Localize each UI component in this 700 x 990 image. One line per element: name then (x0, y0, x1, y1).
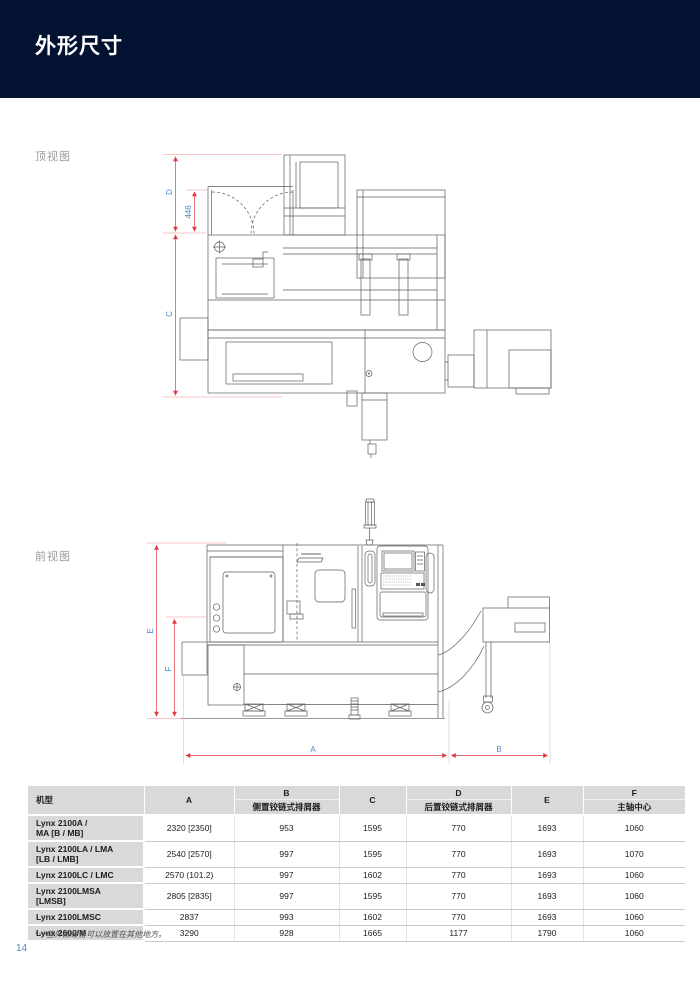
cell-f: 1060 (583, 909, 685, 925)
page-title: 外形尺寸 (35, 30, 123, 60)
cell-b: 993 (234, 909, 339, 925)
cell-d: 770 (406, 883, 511, 909)
col-header-b-letter: B (235, 786, 339, 800)
cell-model: Lynx 2100LC / LMC (28, 867, 144, 883)
col-header-d-sub: 后置铰链式排屑器 (407, 800, 511, 814)
cell-b: 997 (234, 867, 339, 883)
leveling-foot (243, 704, 265, 716)
cell-c: 1595 (339, 815, 406, 841)
cell-d: 1177 (406, 925, 511, 941)
front-view-label: 前视图 (35, 548, 71, 564)
cell-e: 1790 (511, 925, 583, 941)
col-header-f-sub: 主轴中心 (584, 800, 686, 814)
col-header-b: B 侧置铰链式排屑器 (234, 786, 339, 815)
top-view-dimension-lines (163, 155, 282, 398)
cell-e: 1693 (511, 909, 583, 925)
cell-a: 2540 [2570] (144, 841, 234, 867)
cell-c: 1602 (339, 867, 406, 883)
cell-c: 1602 (339, 909, 406, 925)
cell-f: 1060 (583, 815, 685, 841)
cell-b: 997 (234, 883, 339, 909)
front-dim-label-e: E (146, 628, 155, 633)
cell-c: 1595 (339, 883, 406, 909)
top-dim-label-c: C (165, 311, 174, 317)
cell-a: 2805 [2835] (144, 883, 234, 909)
cell-d: 770 (406, 909, 511, 925)
front-dim-label-a: A (310, 745, 316, 754)
leveling-foot (285, 704, 307, 716)
cell-e: 1693 (511, 815, 583, 841)
brand-logo-marks (297, 554, 323, 562)
cell-f: 1060 (583, 867, 685, 883)
col-header-d: D 后置铰链式排屑器 (406, 786, 511, 815)
cell-a: 2837 (144, 909, 234, 925)
chip-conveyor (438, 597, 550, 713)
cell-model: Lynx 2100LMSA [LMSB] (28, 883, 144, 909)
cell-b: 997 (234, 841, 339, 867)
top-view-drawing: D 446 C (140, 140, 570, 470)
cell-a: 2320 [2350] (144, 815, 234, 841)
top-dim-label-446: 446 (184, 205, 193, 219)
cell-b: 953 (234, 815, 339, 841)
leveling-foot (389, 704, 411, 716)
cell-d: 770 (406, 841, 511, 867)
table-row: Lynx 2100LMSC 2837 993 1602 770 1693 106… (28, 909, 685, 925)
front-view-machine-outline (180, 499, 550, 719)
col-header-f-letter: F (584, 786, 686, 800)
cell-f: 1060 (583, 883, 685, 909)
cell-d: 770 (406, 867, 511, 883)
top-view-label: 顶视图 (35, 148, 71, 164)
cell-model: Lynx 2100LMSC (28, 909, 144, 925)
table-row: Lynx 2100LC / LMC 2570 (101.2) 997 1602 … (28, 867, 685, 883)
front-view-dimension-lines (147, 543, 550, 764)
col-header-e: E (511, 786, 583, 815)
table-header-row: 机型 A B 侧置铰链式排屑器 C D 后置铰链式排屑器 E F 主轴中心 (28, 786, 685, 815)
dimensions-table: 机型 A B 侧置铰链式排屑器 C D 后置铰链式排屑器 E F 主轴中心 Ly… (28, 786, 685, 942)
front-dim-label-f: F (164, 666, 173, 671)
front-view-drawing: E F A B (140, 492, 570, 780)
cell-e: 1693 (511, 883, 583, 909)
cell-b: 928 (234, 925, 339, 941)
cell-c: 1595 (339, 841, 406, 867)
table-row: Lynx 2100LA / LMA [LB / LMB] 2540 [2570]… (28, 841, 685, 867)
cell-e: 1693 (511, 841, 583, 867)
footnote: *一些外围设备可以放置在其他地方。 (35, 929, 166, 940)
cell-d: 770 (406, 815, 511, 841)
cell-a: 2570 (101.2) (144, 867, 234, 883)
col-header-a: A (144, 786, 234, 815)
cell-f: 1070 (583, 841, 685, 867)
cell-e: 1693 (511, 867, 583, 883)
cell-model: Lynx 2100A / MA [B / MB] (28, 815, 144, 841)
page-header-banner: 外形尺寸 (0, 0, 700, 98)
front-dim-label-b: B (496, 745, 501, 754)
col-header-c: C (339, 786, 406, 815)
table-row: Lynx 2100LMSA [LMSB] 2805 [2835] 997 159… (28, 883, 685, 909)
top-view-machine-outline (180, 155, 551, 458)
table-row: Lynx 2100A / MA [B / MB] 2320 [2350] 953… (28, 815, 685, 841)
col-header-model: 机型 (28, 786, 144, 815)
cell-c: 1665 (339, 925, 406, 941)
col-header-b-sub: 侧置铰链式排屑器 (235, 800, 339, 814)
cell-f: 1060 (583, 925, 685, 941)
col-header-f: F 主轴中心 (583, 786, 685, 815)
top-dim-label-d: D (165, 189, 174, 195)
page-number: 14 (16, 943, 27, 954)
col-header-d-letter: D (407, 786, 511, 800)
cell-model: Lynx 2100LA / LMA [LB / LMB] (28, 841, 144, 867)
